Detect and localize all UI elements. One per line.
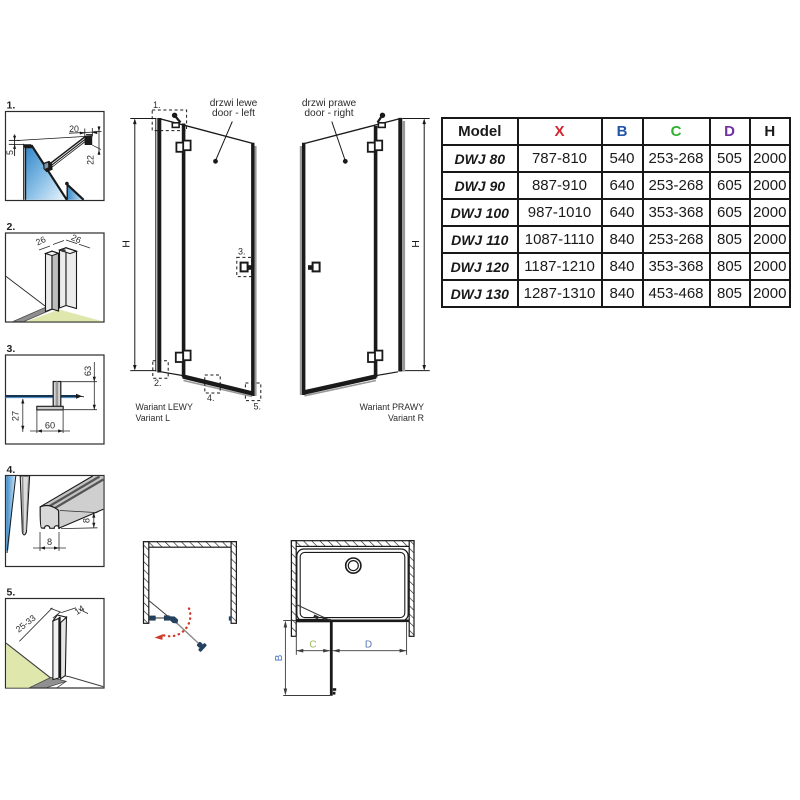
svg-text:1.: 1. [153,100,161,110]
svg-text:H: H [410,240,422,248]
svg-text:60: 60 [45,421,55,431]
svg-text:Variant R: Variant R [388,413,424,423]
svg-text:14: 14 [73,603,87,617]
svg-text:2.: 2. [7,221,16,233]
svg-text:H: H [121,240,133,248]
svg-text:Variant L: Variant L [136,413,171,423]
svg-text:25-33: 25-33 [14,613,38,635]
svg-text:20: 20 [69,124,79,134]
svg-text:4.: 4. [207,393,215,403]
svg-text:27: 27 [11,411,21,421]
svg-text:3.: 3. [238,247,246,257]
svg-text:22: 22 [86,155,96,165]
svg-text:D: D [365,640,372,651]
svg-text:8: 8 [47,537,52,547]
svg-text:C: C [309,640,316,651]
svg-text:1.: 1. [7,100,16,112]
svg-text:63: 63 [83,366,93,376]
svg-text:door - left: door - left [212,108,255,119]
svg-text:8: 8 [82,518,92,523]
svg-text:B: B [274,654,285,661]
svg-text:Wariant PRAWY: Wariant PRAWY [360,402,424,412]
svg-text:2.: 2. [154,378,162,388]
svg-text:5.: 5. [7,587,16,599]
svg-text:4.: 4. [7,464,16,476]
svg-text:5: 5 [5,150,15,155]
svg-text:Wariant LEWY: Wariant LEWY [136,402,193,412]
svg-text:26: 26 [34,234,47,247]
svg-text:5.: 5. [254,402,262,412]
svg-text:3.: 3. [7,343,16,355]
svg-text:26: 26 [70,232,83,245]
svg-text:door - right: door - right [304,108,353,119]
